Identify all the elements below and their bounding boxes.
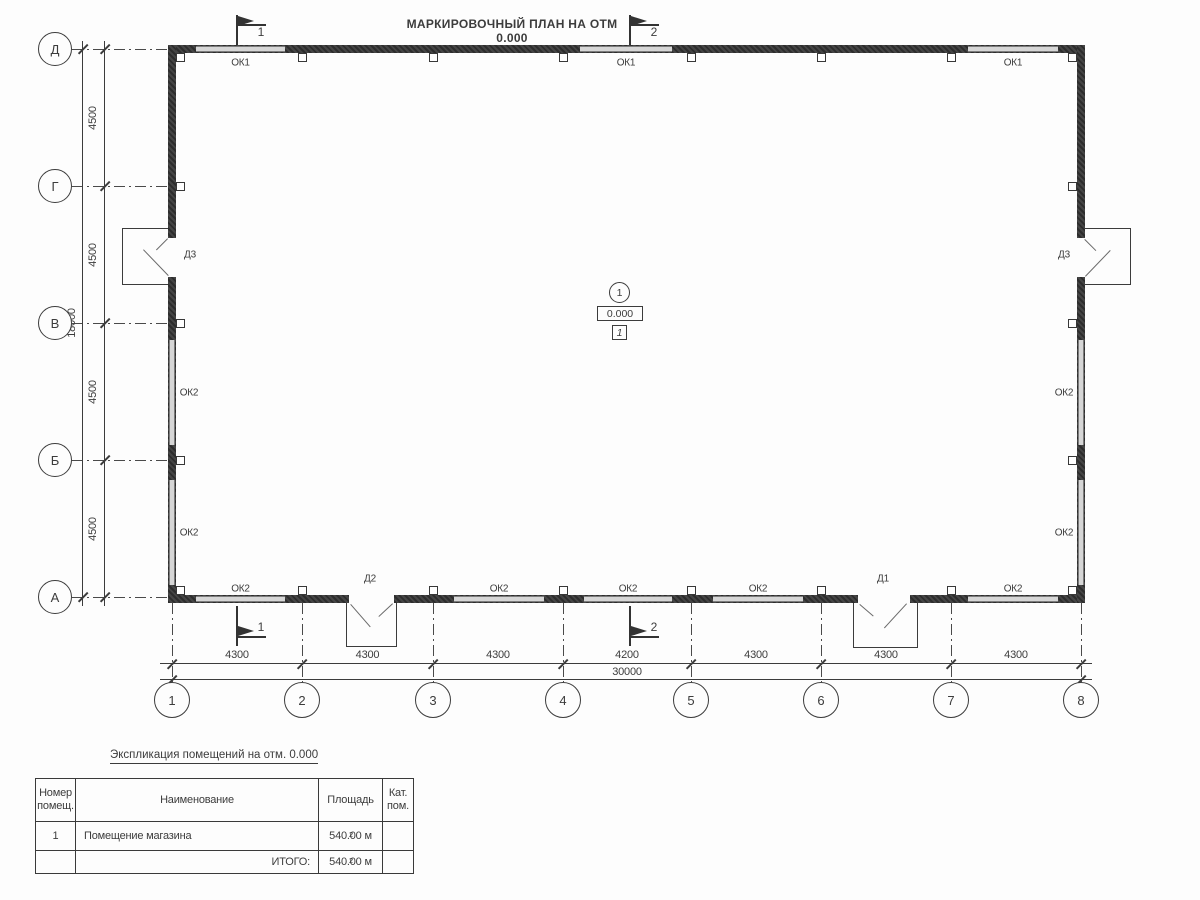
window-ok2 <box>1078 480 1084 585</box>
window-label-ok2: ОК2 <box>490 584 509 595</box>
window-label-ok2: ОК2 <box>619 584 638 595</box>
column-marker <box>176 53 185 62</box>
column-marker <box>687 586 696 595</box>
schedule-cell-num <box>36 851 76 873</box>
grid-bubble-row: А <box>38 580 72 614</box>
grid-bubble-col: 4 <box>545 682 581 718</box>
column-marker <box>1068 182 1077 191</box>
window-ok2 <box>968 596 1058 602</box>
dim-label: 4300 <box>874 649 898 661</box>
window-ok2 <box>713 596 803 602</box>
axis-line-row <box>72 49 168 50</box>
dim-label: 4300 <box>225 649 249 661</box>
grid-bubble-col: 7 <box>933 682 969 718</box>
dim-label: 4300 <box>486 649 510 661</box>
dim-line-left-total <box>82 41 83 606</box>
schedule-cell-num: 1 <box>36 822 76 851</box>
column-marker <box>817 586 826 595</box>
grid-bubble-col: 3 <box>415 682 451 718</box>
schedule-cell-cat <box>383 851 413 873</box>
column-marker <box>559 586 568 595</box>
dim-label: 4300 <box>744 649 768 661</box>
column-marker <box>1068 319 1077 328</box>
axis-line-row <box>72 186 168 187</box>
dim-label: 4500 <box>87 243 99 267</box>
window-label-ok2: ОК2 <box>1004 584 1023 595</box>
column-marker <box>176 456 185 465</box>
door-label-d2: Д2 <box>364 574 376 585</box>
window-label-ok2: ОК2 <box>1055 527 1074 538</box>
window-ok2 <box>584 596 672 602</box>
window-ok1 <box>580 46 672 52</box>
section-arrow-icon <box>631 16 647 26</box>
window-label-ok2: ОК2 <box>749 584 768 595</box>
section-label: 1 <box>258 620 265 634</box>
grid-bubble-col: 8 <box>1063 682 1099 718</box>
section-label: 2 <box>651 620 658 634</box>
schedule-heading: Экспликация помещений на отм. 0.000 <box>110 749 318 764</box>
axis-line-col <box>563 603 564 682</box>
grid-bubble-row: Д <box>38 32 72 66</box>
column-marker <box>1068 53 1077 62</box>
section-arrow-icon <box>238 16 254 26</box>
door-label-d3: Д3 <box>1058 250 1070 261</box>
column-marker <box>176 586 185 595</box>
schedule-cell-cat <box>383 822 413 851</box>
window-label-ok2: ОК2 <box>1055 387 1074 398</box>
column-marker <box>687 53 696 62</box>
dim-label: 4300 <box>356 649 380 661</box>
column-marker <box>559 53 568 62</box>
schedule-col-header: Номер помещ. <box>36 779 76 822</box>
grid-bubble-col: 5 <box>673 682 709 718</box>
axis-line-col <box>951 603 952 682</box>
schedule-cell-area: 540.00 м2 <box>319 851 383 873</box>
section-arrow-icon <box>238 626 254 636</box>
plan-drawing: ОК1ОК1ОК1ОК2ОК2ОК2ОК2ОК2ОК2ОК2ОК2ОК2Д3Д3… <box>0 0 1200 900</box>
column-marker <box>429 586 438 595</box>
axis-line-row <box>72 460 168 461</box>
grid-bubble-row: Б <box>38 443 72 477</box>
axis-line-col <box>172 603 173 682</box>
window-ok2 <box>169 480 175 585</box>
schedule-col-header: Кат. пом. <box>383 779 413 822</box>
window-label-ok2: ОК2 <box>180 527 199 538</box>
window-label-ok2: ОК2 <box>180 387 199 398</box>
window-ok2 <box>454 596 544 602</box>
section-flag <box>238 636 266 638</box>
column-marker <box>429 53 438 62</box>
section-flag <box>631 636 659 638</box>
schedule-cell-total-label: ИТОГО: <box>76 851 319 873</box>
schedule-col-header: Наименование <box>76 779 319 822</box>
window-label-ok1: ОК1 <box>617 58 636 69</box>
axis-line-col <box>1081 603 1082 682</box>
column-marker <box>298 586 307 595</box>
floor-plan-sheet: МАРКИРОВОЧНЫЙ ПЛАН НА ОТМ 0.000 ОК1ОК1ОК… <box>0 0 1200 900</box>
dim-label: 4300 <box>1004 649 1028 661</box>
area-sup: 2 <box>349 831 353 840</box>
dim-label: 4500 <box>87 106 99 130</box>
window-ok1 <box>196 46 285 52</box>
window-ok2 <box>1078 340 1084 445</box>
door-label-d3: Д3 <box>184 250 196 261</box>
vestibule-d3-left <box>122 228 168 285</box>
window-label-ok1: ОК1 <box>231 58 250 69</box>
column-marker <box>1068 586 1077 595</box>
dim-label: 4500 <box>87 380 99 404</box>
column-marker <box>176 182 185 191</box>
window-ok2 <box>169 340 175 445</box>
room-number-box: 1 <box>612 325 627 340</box>
column-marker <box>298 53 307 62</box>
window-ok1 <box>968 46 1058 52</box>
dim-line-bottom-total <box>160 679 1092 680</box>
column-marker <box>947 586 956 595</box>
schedule-col-header: Площадь <box>319 779 383 822</box>
section-label: 2 <box>651 25 658 39</box>
door-opening-d3-left <box>167 238 177 277</box>
axis-line-col <box>302 603 303 682</box>
grid-bubble-row: Г <box>38 169 72 203</box>
axis-line-col <box>821 603 822 682</box>
grid-bubble-col: 2 <box>284 682 320 718</box>
window-label-ok1: ОК1 <box>1004 58 1023 69</box>
dim-label-total: 30000 <box>612 666 642 678</box>
grid-bubble-col: 1 <box>154 682 190 718</box>
section-label: 1 <box>258 25 265 39</box>
axis-line-row <box>72 323 168 324</box>
section-arrow-icon <box>631 626 647 636</box>
dim-label: 4200 <box>615 649 639 661</box>
schedule-cell-name: Помещение магазина <box>76 822 319 851</box>
room-number-circle: 1 <box>609 282 630 303</box>
grid-bubble-row: В <box>38 306 72 340</box>
vestibule-d3-right <box>1085 228 1131 285</box>
column-marker <box>947 53 956 62</box>
window-label-ok2: ОК2 <box>231 584 250 595</box>
grid-bubble-col: 6 <box>803 682 839 718</box>
area-sup: 2 <box>349 857 353 866</box>
dim-label: 4500 <box>87 517 99 541</box>
column-marker <box>817 53 826 62</box>
column-marker <box>1068 456 1077 465</box>
axis-line-row <box>72 597 168 598</box>
axis-line-col <box>433 603 434 682</box>
elevation-mark: 0.000 <box>597 306 643 321</box>
door-label-d1: Д1 <box>877 574 889 585</box>
schedule-cell-area: 540.00 м2 <box>319 822 383 851</box>
column-marker <box>176 319 185 328</box>
schedule-table: Номер помещ. Наименование Площадь Кат. п… <box>35 778 414 874</box>
window-ok2 <box>196 596 285 602</box>
axis-line-col <box>691 603 692 682</box>
